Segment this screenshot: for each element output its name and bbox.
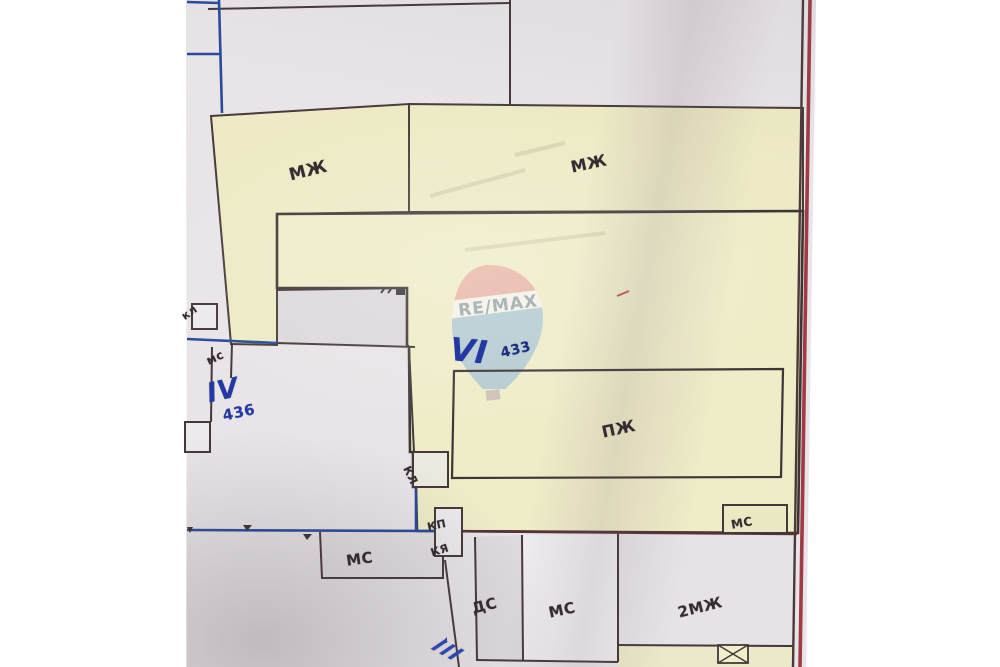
parcel-2mzh-fill xyxy=(618,533,795,645)
parcel-ms-left-fill xyxy=(320,532,443,578)
parcel-notch-grey xyxy=(277,288,407,345)
label-building-ms-bottom-left: МС xyxy=(345,548,374,570)
map-drawing: RE/MAX xyxy=(0,0,1000,667)
strip-bottom-cream xyxy=(618,645,793,667)
cadastral-map-photo: RE/MAX xyxy=(0,0,1000,667)
envelope-symbol-icon xyxy=(718,645,748,663)
label-parcel-vi-roman: VI xyxy=(448,330,489,372)
balloon-basket xyxy=(485,389,500,401)
